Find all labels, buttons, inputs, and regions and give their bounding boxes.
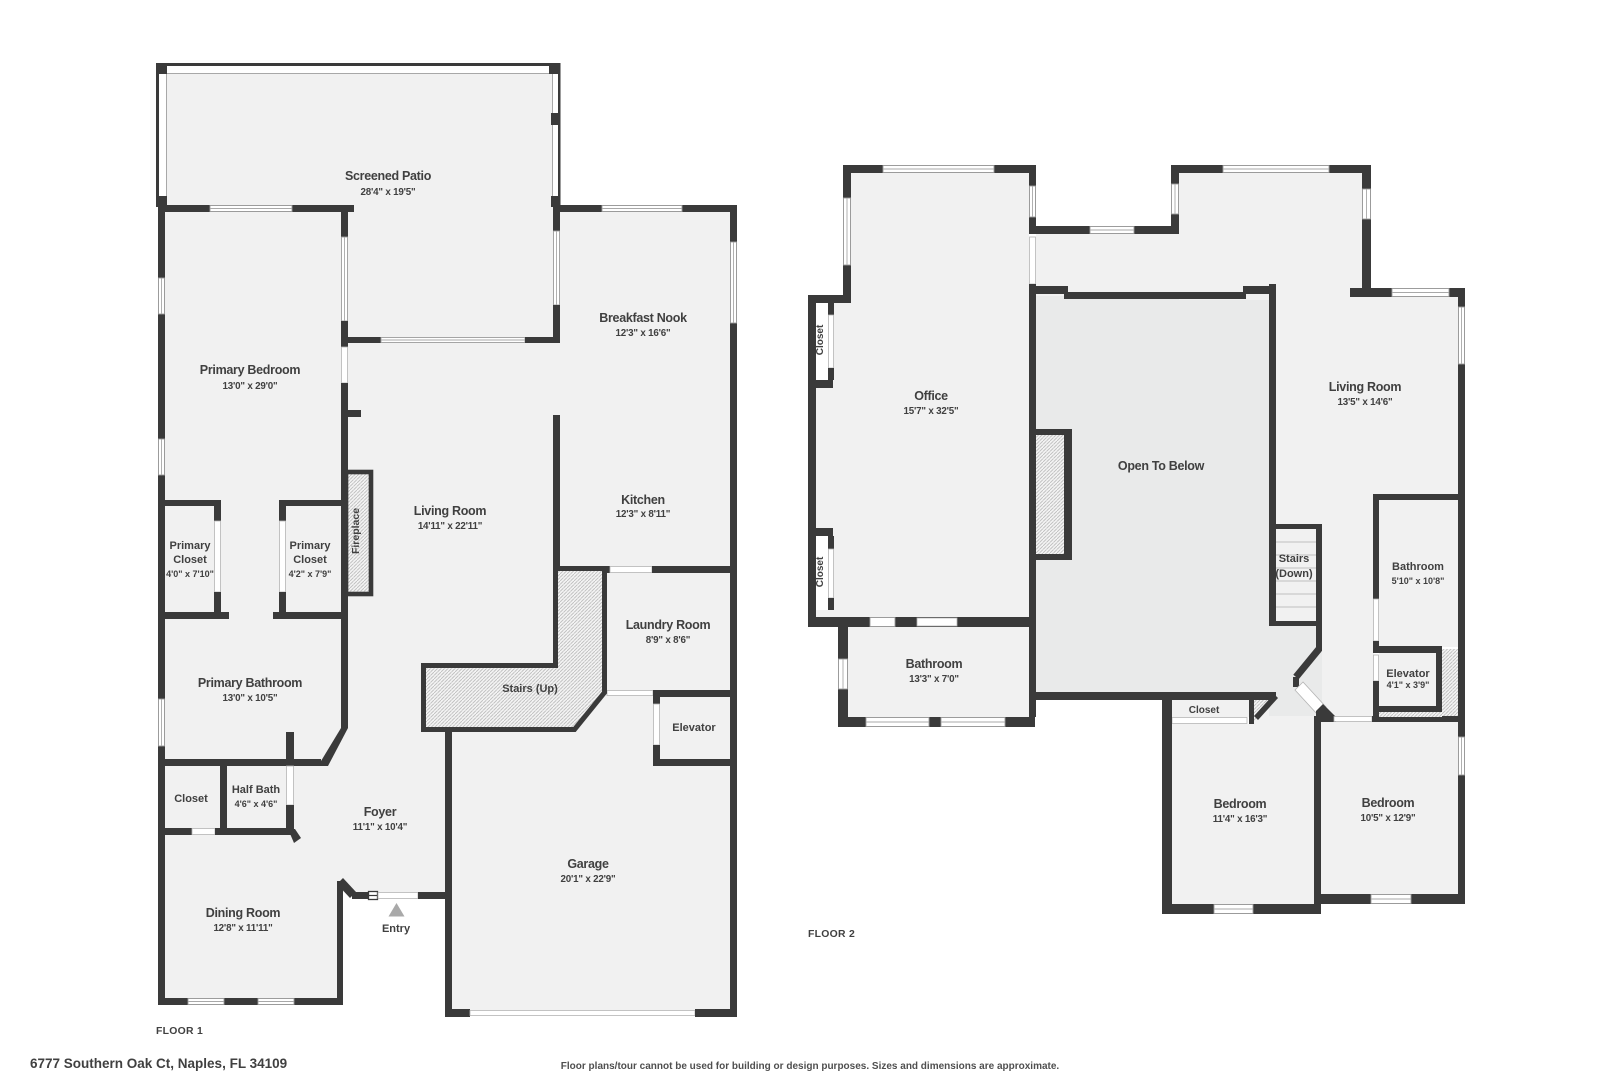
- svg-text:Laundry Room: Laundry Room: [626, 618, 711, 632]
- svg-text:Bathroom: Bathroom: [1392, 561, 1444, 573]
- svg-text:20'1" x 22'9": 20'1" x 22'9": [561, 874, 616, 885]
- svg-text:Primary Bedroom: Primary Bedroom: [200, 363, 301, 377]
- svg-text:Kitchen: Kitchen: [621, 493, 665, 507]
- svg-text:13'0" x 10'5": 13'0" x 10'5": [223, 693, 278, 704]
- svg-text:5'10" x 10'8": 5'10" x 10'8": [1392, 576, 1445, 586]
- svg-text:Primary: Primary: [290, 540, 332, 552]
- svg-text:11'4" x 16'3": 11'4" x 16'3": [1213, 814, 1267, 825]
- svg-text:4'6" x 4'6": 4'6" x 4'6": [235, 799, 278, 809]
- svg-text:Closet: Closet: [815, 324, 826, 355]
- svg-text:28'4" x 19'5": 28'4" x 19'5": [361, 187, 416, 198]
- svg-text:Closet: Closet: [173, 554, 207, 566]
- svg-text:Garage: Garage: [567, 857, 609, 871]
- svg-text:Living Room: Living Room: [1329, 380, 1402, 394]
- svg-text:8'9" x 8'6": 8'9" x 8'6": [646, 635, 690, 646]
- svg-text:13'0" x 29'0": 13'0" x 29'0": [223, 381, 278, 392]
- svg-text:Fireplace: Fireplace: [350, 508, 362, 554]
- svg-text:Half Bath: Half Bath: [232, 784, 281, 796]
- svg-text:Closet: Closet: [174, 793, 208, 805]
- svg-text:Foyer: Foyer: [364, 805, 397, 819]
- svg-text:12'8" x 11'11": 12'8" x 11'11": [213, 923, 272, 934]
- svg-text:6777 Southern Oak Ct, Naples,: 6777 Southern Oak Ct, Naples, FL 34109: [30, 1056, 287, 1071]
- svg-text:11'1" x 10'4": 11'1" x 10'4": [353, 822, 407, 833]
- svg-text:FLOOR 1: FLOOR 1: [156, 1026, 203, 1037]
- svg-text:Entry: Entry: [382, 923, 411, 935]
- svg-text:4'0" x 7'10": 4'0" x 7'10": [166, 569, 214, 579]
- svg-text:13'5" x 14'6": 13'5" x 14'6": [1338, 397, 1393, 408]
- svg-text:12'3" x 16'6": 12'3" x 16'6": [616, 328, 671, 339]
- svg-text:FLOOR 2: FLOOR 2: [808, 929, 855, 940]
- svg-text:Bedroom: Bedroom: [1214, 797, 1267, 811]
- svg-text:15'7" x 32'5": 15'7" x 32'5": [904, 406, 959, 417]
- svg-text:13'3" x 7'0": 13'3" x 7'0": [909, 674, 959, 685]
- svg-text:Floor plans/tour cannot be use: Floor plans/tour cannot be used for buil…: [561, 1061, 1060, 1072]
- svg-text:Dining Room: Dining Room: [206, 906, 281, 920]
- svg-text:Primary: Primary: [170, 540, 212, 552]
- svg-text:4'1" x 3'9": 4'1" x 3'9": [1387, 680, 1430, 690]
- svg-text:(Down): (Down): [1275, 568, 1313, 580]
- svg-text:Closet: Closet: [815, 556, 826, 587]
- svg-text:Bedroom: Bedroom: [1362, 796, 1415, 810]
- svg-text:Elevator: Elevator: [1386, 668, 1430, 680]
- svg-text:Stairs: Stairs: [1279, 553, 1310, 565]
- svg-text:Office: Office: [914, 389, 948, 403]
- svg-text:Elevator: Elevator: [672, 722, 716, 734]
- svg-text:Living Room: Living Room: [414, 504, 487, 518]
- svg-text:Closet: Closet: [1189, 705, 1220, 716]
- svg-text:Screened Patio: Screened Patio: [345, 169, 432, 183]
- svg-text:14'11" x 22'11": 14'11" x 22'11": [418, 521, 482, 532]
- svg-text:Stairs (Up): Stairs (Up): [502, 683, 558, 695]
- svg-text:Closet: Closet: [293, 554, 327, 566]
- svg-text:Bathroom: Bathroom: [906, 657, 963, 671]
- svg-text:10'5" x 12'9": 10'5" x 12'9": [1361, 813, 1416, 824]
- svg-text:Open To Below: Open To Below: [1118, 459, 1205, 473]
- svg-text:12'3" x 8'11": 12'3" x 8'11": [616, 509, 670, 520]
- svg-text:Primary Bathroom: Primary Bathroom: [198, 676, 302, 690]
- svg-text:Breakfast Nook: Breakfast Nook: [599, 311, 687, 325]
- svg-text:4'2" x 7'9": 4'2" x 7'9": [289, 569, 332, 579]
